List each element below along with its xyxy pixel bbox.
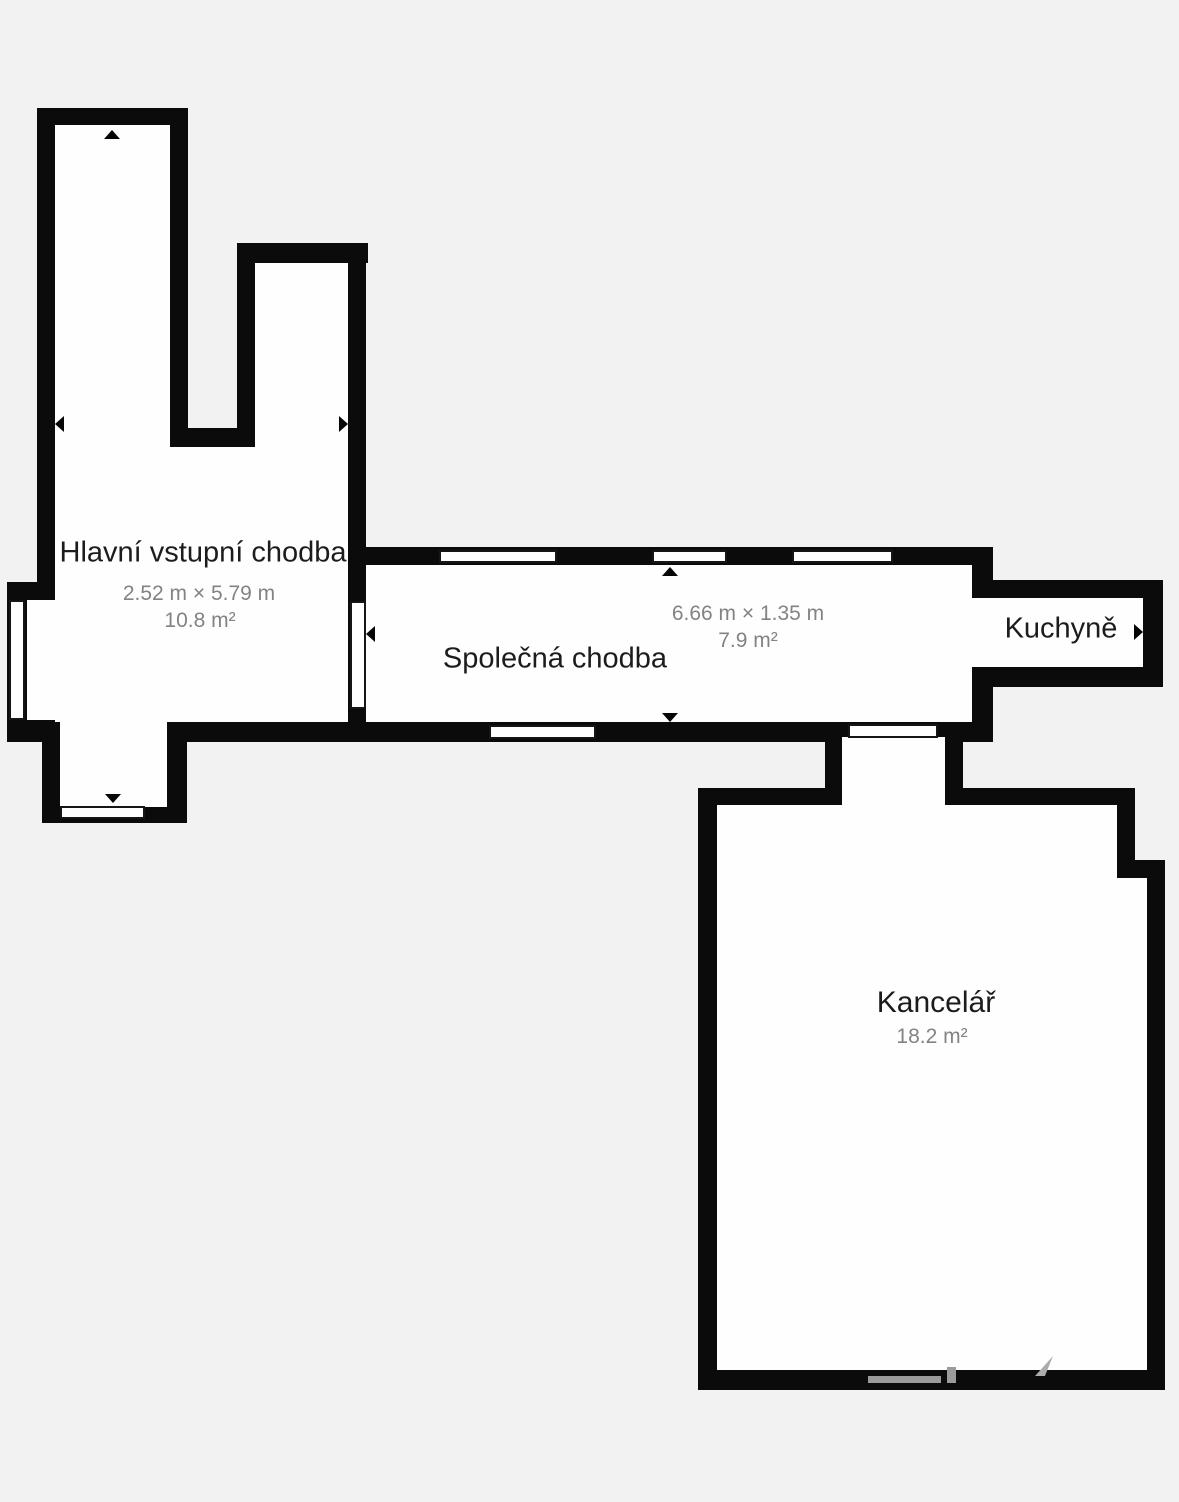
window-strip-left xyxy=(9,600,25,720)
room-interior-hlavni xyxy=(255,263,348,722)
wall-segment xyxy=(972,580,1163,598)
door-opening-bottom xyxy=(489,725,596,739)
wall-segment xyxy=(1147,860,1165,1390)
door-opening-entry xyxy=(60,806,145,819)
room-label-spolecna: Společná chodba xyxy=(443,642,667,675)
arrow-up-icon xyxy=(662,567,678,576)
room-label-kuchyne: Kuchyně xyxy=(1005,612,1118,645)
room-interior-spolecna xyxy=(972,598,993,667)
wall-segment xyxy=(1143,580,1163,687)
watermark-fragment xyxy=(868,1376,941,1383)
arrow-left-icon xyxy=(366,626,375,642)
arrow-left-icon xyxy=(55,416,64,432)
wall-segment xyxy=(698,788,842,805)
room-interior-hlavni xyxy=(55,125,170,722)
wall-segment xyxy=(237,243,255,447)
room-label-kancelar: Kancelář xyxy=(877,986,995,1021)
room-interior-kancelar-neck xyxy=(842,737,945,805)
wall-segment xyxy=(945,788,1135,805)
room-area-spolecna: 7.9 m² xyxy=(718,629,778,653)
wall-segment xyxy=(972,687,993,742)
window-strip-top-2 xyxy=(652,550,727,563)
room-area-kancelar: 18.2 m² xyxy=(896,1025,967,1049)
arrow-down-icon xyxy=(662,713,678,722)
floorplan-canvas: Hlavní vstupní chodba 2.52 m × 5.79 m 10… xyxy=(0,0,1179,1502)
window-strip-top-1 xyxy=(439,550,557,563)
wall-segment xyxy=(972,667,1163,687)
wall-segment xyxy=(698,788,717,1390)
arrow-right-icon xyxy=(1134,624,1143,640)
window-strip-top-3 xyxy=(792,550,893,563)
wall-segment xyxy=(972,565,993,580)
wall-segment xyxy=(37,108,188,125)
watermark-fragment xyxy=(947,1367,956,1383)
door-opening-spolecna-kancelar xyxy=(848,724,938,738)
arrow-right-icon xyxy=(339,416,348,432)
arrow-down-icon xyxy=(105,794,121,803)
wall-segment xyxy=(37,108,55,582)
room-interior-kancelar xyxy=(1117,878,1147,1370)
room-dimensions-hlavni: 2.52 m × 5.79 m xyxy=(123,582,275,606)
room-interior-hlavni xyxy=(27,600,55,720)
arrow-up-icon xyxy=(104,130,120,139)
room-label-hlavni: Hlavní vstupní chodba xyxy=(60,536,347,569)
room-interior-kancelar xyxy=(717,805,1117,1370)
wall-segment xyxy=(7,720,60,742)
door-opening-hlavni-spolecna xyxy=(350,601,366,709)
wall-segment xyxy=(170,125,188,447)
wall-segment xyxy=(167,742,187,823)
room-dimensions-spolecna: 6.66 m × 1.35 m xyxy=(672,602,824,626)
wall-segment xyxy=(167,722,348,742)
room-area-hlavni: 10.8 m² xyxy=(164,609,235,633)
